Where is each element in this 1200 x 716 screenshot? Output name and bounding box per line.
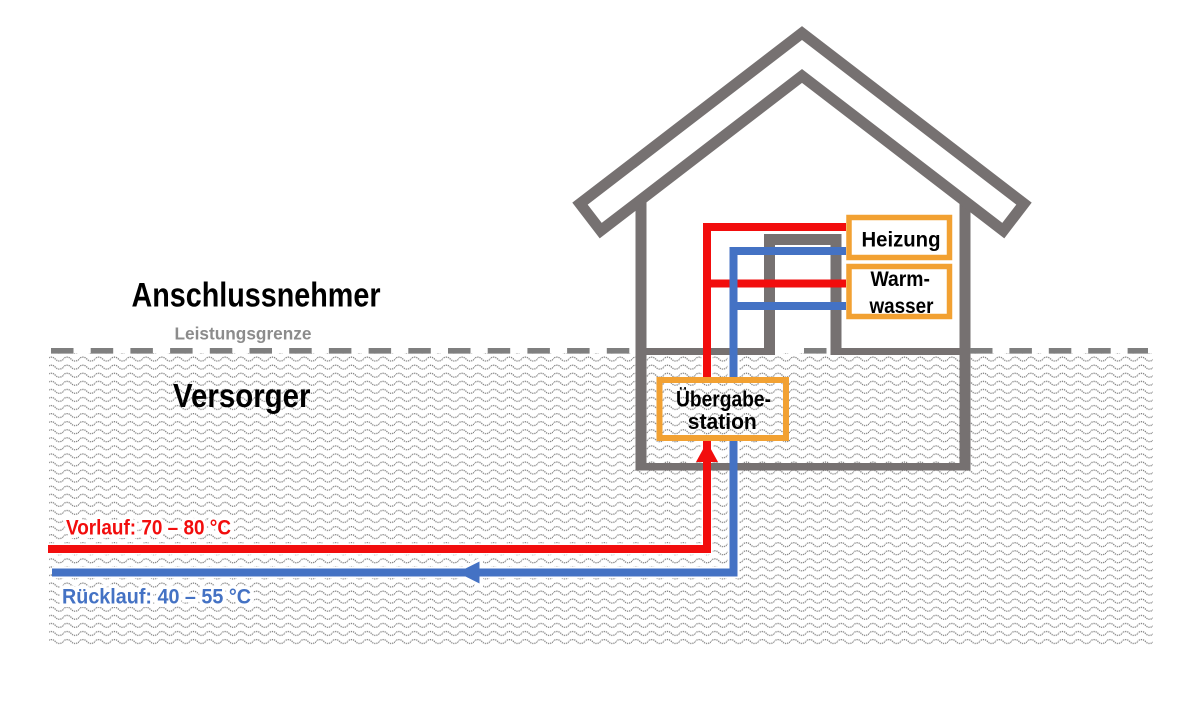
svg-text:Anschlussnehmer: Anschlussnehmer	[132, 277, 381, 315]
svg-text:Heizung: Heizung	[862, 227, 941, 251]
svg-text:Warm-: Warm-	[870, 267, 930, 291]
svg-text:Vorlauf: 70 – 80 °C: Vorlauf: 70 – 80 °C	[66, 517, 231, 540]
svg-text:Rücklauf: 40 – 55 °C: Rücklauf: 40 – 55 °C	[62, 586, 251, 609]
svg-text:station: station	[688, 409, 757, 434]
svg-text:wasser: wasser	[869, 294, 934, 318]
svg-text:Leistungsgrenze: Leistungsgrenze	[175, 324, 312, 344]
svg-text:Übergabe-: Übergabe-	[676, 386, 771, 411]
svg-text:Versorger: Versorger	[173, 377, 311, 414]
